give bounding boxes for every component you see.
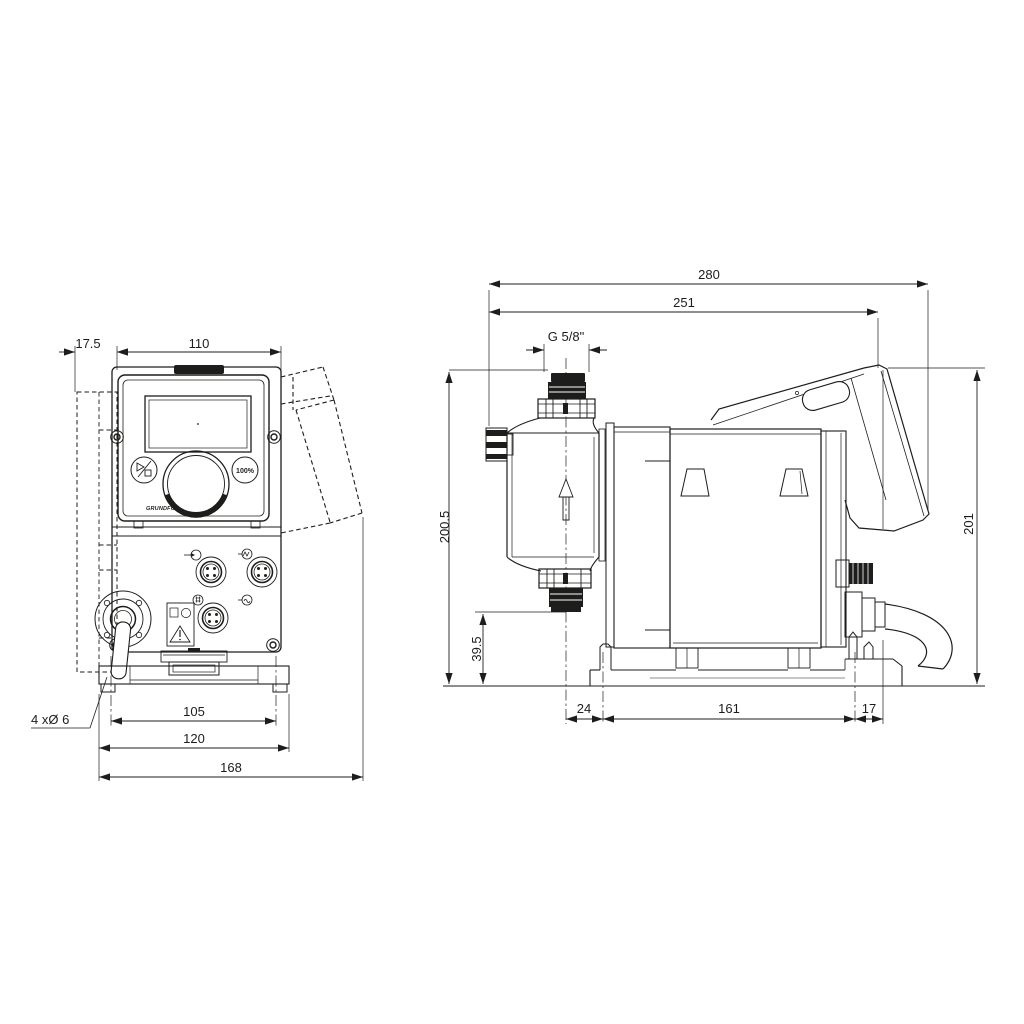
plate-clip (864, 642, 873, 659)
connector-signal-icon (184, 550, 201, 560)
brand-logo: GRUNDFOS (146, 506, 179, 512)
m12-connector[interactable] (198, 603, 228, 633)
m12-connector[interactable] (247, 557, 277, 587)
dim-overall-depth: 280 (698, 267, 720, 282)
dim-depth-to-cube: 251 (673, 295, 695, 310)
power-cable-side (885, 604, 952, 669)
mounting-holes-callout: 4 xØ 6 (31, 677, 107, 728)
mounting-clip (780, 469, 808, 496)
dim-connection-thread: G 5/8" (548, 329, 585, 344)
capacity-button-label: 100% (236, 468, 255, 475)
leader-line (90, 677, 107, 728)
dim-suction-valve-height: 39.5 (469, 636, 484, 661)
dim-plate-rear-offset: 17 (862, 701, 876, 716)
dim-hole-spacing: 105 (183, 704, 205, 719)
capacity-100-button[interactable]: 100% (232, 457, 258, 483)
panel-top-tab (174, 365, 224, 374)
control-panel: 100% GRUNDFOS (118, 365, 269, 521)
head-flange (599, 423, 614, 647)
display-screen (145, 396, 251, 452)
connector-pulse-icon (238, 549, 252, 559)
side-dimensions: 280 251 G 5/8" 200.5 39.5 24 161 (437, 267, 985, 724)
thread-callout: G 5/8" (526, 329, 607, 372)
plate-clip (849, 632, 857, 659)
dim-height-to-connection: 200.5 (437, 511, 452, 544)
dim-overall-width: 168 (220, 760, 242, 775)
suction-thread (549, 588, 583, 607)
connector-grid-icon (193, 595, 203, 605)
control-cube-rotated-ghost (281, 367, 362, 533)
technical-drawing: 100% GRUNDFOS (0, 0, 1024, 1024)
warning-icon (170, 626, 190, 642)
signal-connectors (184, 549, 277, 633)
front-dimensions: 17.5 110 105 120 168 4 xØ 6 (31, 336, 363, 781)
power-cable (110, 621, 131, 679)
dim-housing-width: 110 (189, 336, 210, 351)
pump-housing-front (112, 367, 281, 652)
cable-gland-side (845, 592, 862, 637)
dosing-head (507, 418, 599, 571)
plate-clip (600, 644, 611, 670)
discharge-valve-connection (538, 373, 595, 418)
dim-control-cube-height: 201 (961, 513, 976, 535)
rotate-icon (181, 608, 190, 617)
connector-wave-icon (238, 595, 252, 605)
electrical-connection (836, 560, 952, 669)
dim-plate-hole-spacing: 161 (718, 701, 740, 716)
mounting-plate-side (590, 632, 902, 724)
mounting-clip (681, 469, 709, 496)
m12-connector[interactable] (196, 557, 226, 587)
dimensional-drawing-page: 100% GRUNDFOS (0, 0, 1024, 1024)
mounting-holes-note: 4 xØ 6 (31, 712, 69, 727)
dim-bracket-offset: 17.5 (75, 336, 100, 351)
warning-label (167, 603, 194, 646)
suction-valve-connection (539, 569, 591, 612)
dim-head-offset: 24 (577, 701, 591, 716)
side-view: 280 251 G 5/8" 200.5 39.5 24 161 (437, 267, 985, 724)
control-cube-side (711, 365, 929, 531)
manual-icon (170, 608, 178, 617)
discharge-thread (548, 382, 586, 399)
pump-body-side (614, 427, 846, 668)
screw-icon (267, 639, 280, 652)
start-stop-icon (137, 461, 151, 477)
front-view: 100% GRUNDFOS (31, 336, 363, 781)
start-stop-button[interactable] (131, 457, 157, 483)
dim-plate-width: 120 (183, 731, 205, 746)
